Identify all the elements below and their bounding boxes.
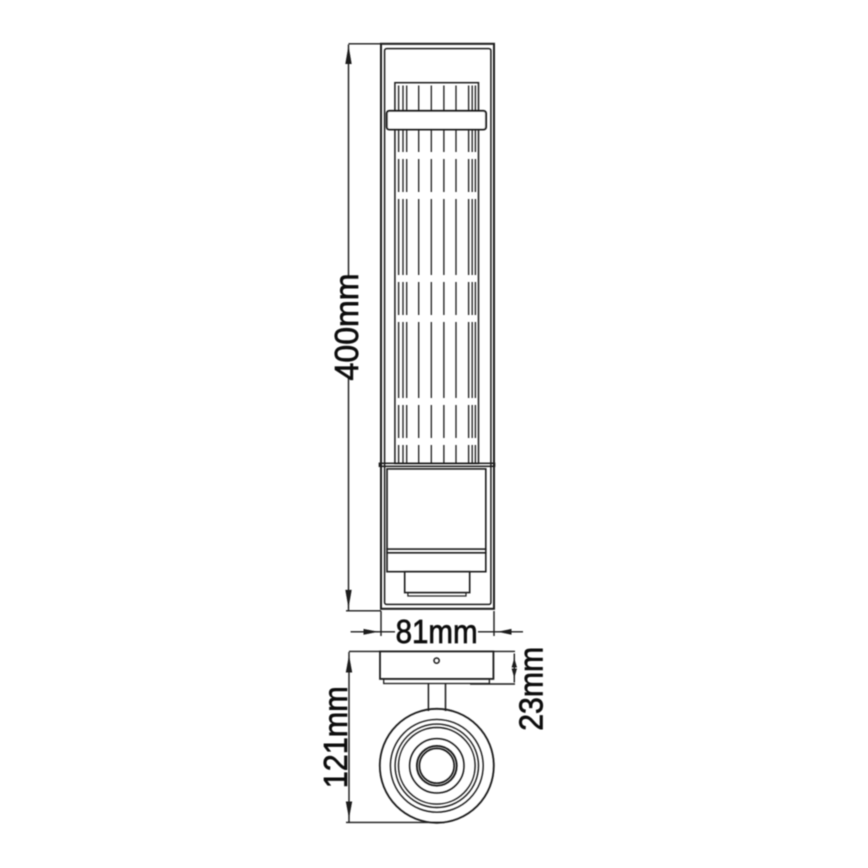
svg-text:23mm: 23mm — [513, 647, 550, 731]
svg-text:121mm: 121mm — [317, 686, 354, 788]
svg-text:81mm: 81mm — [396, 613, 478, 650]
svg-text:400mm: 400mm — [328, 274, 365, 381]
